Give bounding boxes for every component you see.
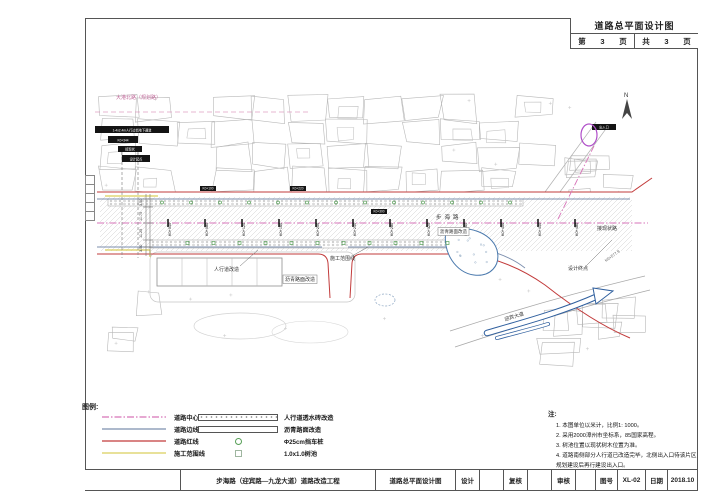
page-number: 3 <box>600 37 604 46</box>
legend-item: 人行道透水砖改造 <box>198 411 334 423</box>
page-unit: 页 <box>619 36 627 47</box>
legend-item-label: 人行道透水砖改造 <box>284 413 334 422</box>
legend-item-label: 道路边线 <box>174 425 199 434</box>
note-item: 1. 本图单位以米计，比例1: 1000。 <box>548 421 700 431</box>
legend-line-swatch <box>100 437 168 445</box>
page-total: 共 3 页 <box>634 34 698 48</box>
legend-item: 道路红线 <box>100 435 205 447</box>
legend-plain-swatch <box>198 426 278 433</box>
page-row: 第 3 页 共 3 页 <box>571 34 698 48</box>
legend-item: 道路中心线 <box>100 411 205 423</box>
legend-item-label: Φ25cm挡车桩 <box>284 437 323 446</box>
total-number: 3 <box>664 37 668 46</box>
legend-symbol-items: 人行道透水砖改造沥青路面改造Φ25cm挡车桩1.0x1.0树池 <box>198 411 334 459</box>
signature-cell <box>85 175 95 185</box>
project-name-cell: 步海路（迎宾路—九龙大道）道路改造工程 <box>180 470 375 490</box>
date-value-cell: 2018.10 <box>667 470 697 490</box>
empty-cell <box>575 470 595 490</box>
signature-cell <box>85 194 95 203</box>
notes-block: 注: 1. 本图单位以米计，比例1: 1000。2. 采用2000漳州市坐标系，… <box>548 408 700 471</box>
legend-line-swatch <box>100 449 168 457</box>
signature-cell <box>85 203 95 212</box>
empty-cell <box>85 470 180 490</box>
drawing-title-cell: 道路总平面设计图 <box>375 470 455 490</box>
legend-item: Φ25cm挡车桩 <box>198 435 334 447</box>
total-unit: 页 <box>683 36 691 47</box>
date-label-cell: 日期 <box>645 470 667 490</box>
title-block: 道路总平面设计图 第 3 页 共 3 页 <box>570 18 698 49</box>
legend-square-swatch <box>198 449 278 457</box>
legend-circle-swatch <box>198 437 278 445</box>
signature-cell <box>85 212 95 221</box>
legend-line-items: 道路中心线道路边线道路红线施工范围线 <box>100 411 205 459</box>
legend-item: 沥青路面改造 <box>198 423 334 435</box>
check-value-cell <box>527 470 551 490</box>
legend-item: 1.0x1.0树池 <box>198 447 334 459</box>
notes-heading: 注: <box>548 408 700 418</box>
legend-line-swatch <box>100 413 168 421</box>
note-item: 3. 树池位置以现状树木位置为准。 <box>548 441 700 451</box>
review-label-cell: 审核 <box>551 470 575 490</box>
legend-heading: 图例: <box>82 402 98 412</box>
sheet-title: 道路总平面设计图 <box>571 18 698 34</box>
note-item: 4. 道路南侧部分人行道已改造完毕，北侧出入口待该片区规划建设后再行建设出入口。 <box>548 451 700 471</box>
drawing-no-value-cell: XL-02 <box>617 470 645 490</box>
total-label: 共 <box>642 36 650 47</box>
notes-list: 1. 本图单位以米计，比例1: 1000。2. 采用2000漳州市坐标系，85国… <box>548 421 700 471</box>
page-current: 第 3 页 <box>571 34 634 48</box>
note-item: 2. 采用2000漳州市坐标系，85国家高程。 <box>548 431 700 441</box>
legend-item-label: 沥青路面改造 <box>284 425 321 434</box>
page-label: 第 <box>578 36 586 47</box>
signature-cell <box>85 185 95 194</box>
check-label-cell: 复核 <box>503 470 527 490</box>
drawing-sheet: K0+040K0+080K0+120K0+160K0+200K0+240K0+2… <box>0 0 707 500</box>
legend-item: 施工范围线 <box>100 447 205 459</box>
bottom-title-bar: 步海路（迎宾路—九龙大道）道路改造工程 道路总平面设计图 设计 复核 审核 图号… <box>85 469 697 490</box>
legend-item-label: 道路红线 <box>174 437 199 446</box>
design-label-cell: 设计 <box>455 470 479 490</box>
legend-brick-swatch <box>198 414 278 421</box>
legend-line-swatch <box>100 425 168 433</box>
legend-item-label: 1.0x1.0树池 <box>284 449 317 458</box>
signature-strip <box>85 175 95 221</box>
legend-item: 道路边线 <box>100 423 205 435</box>
design-value-cell <box>479 470 503 490</box>
drawing-no-label-cell: 图号 <box>595 470 617 490</box>
